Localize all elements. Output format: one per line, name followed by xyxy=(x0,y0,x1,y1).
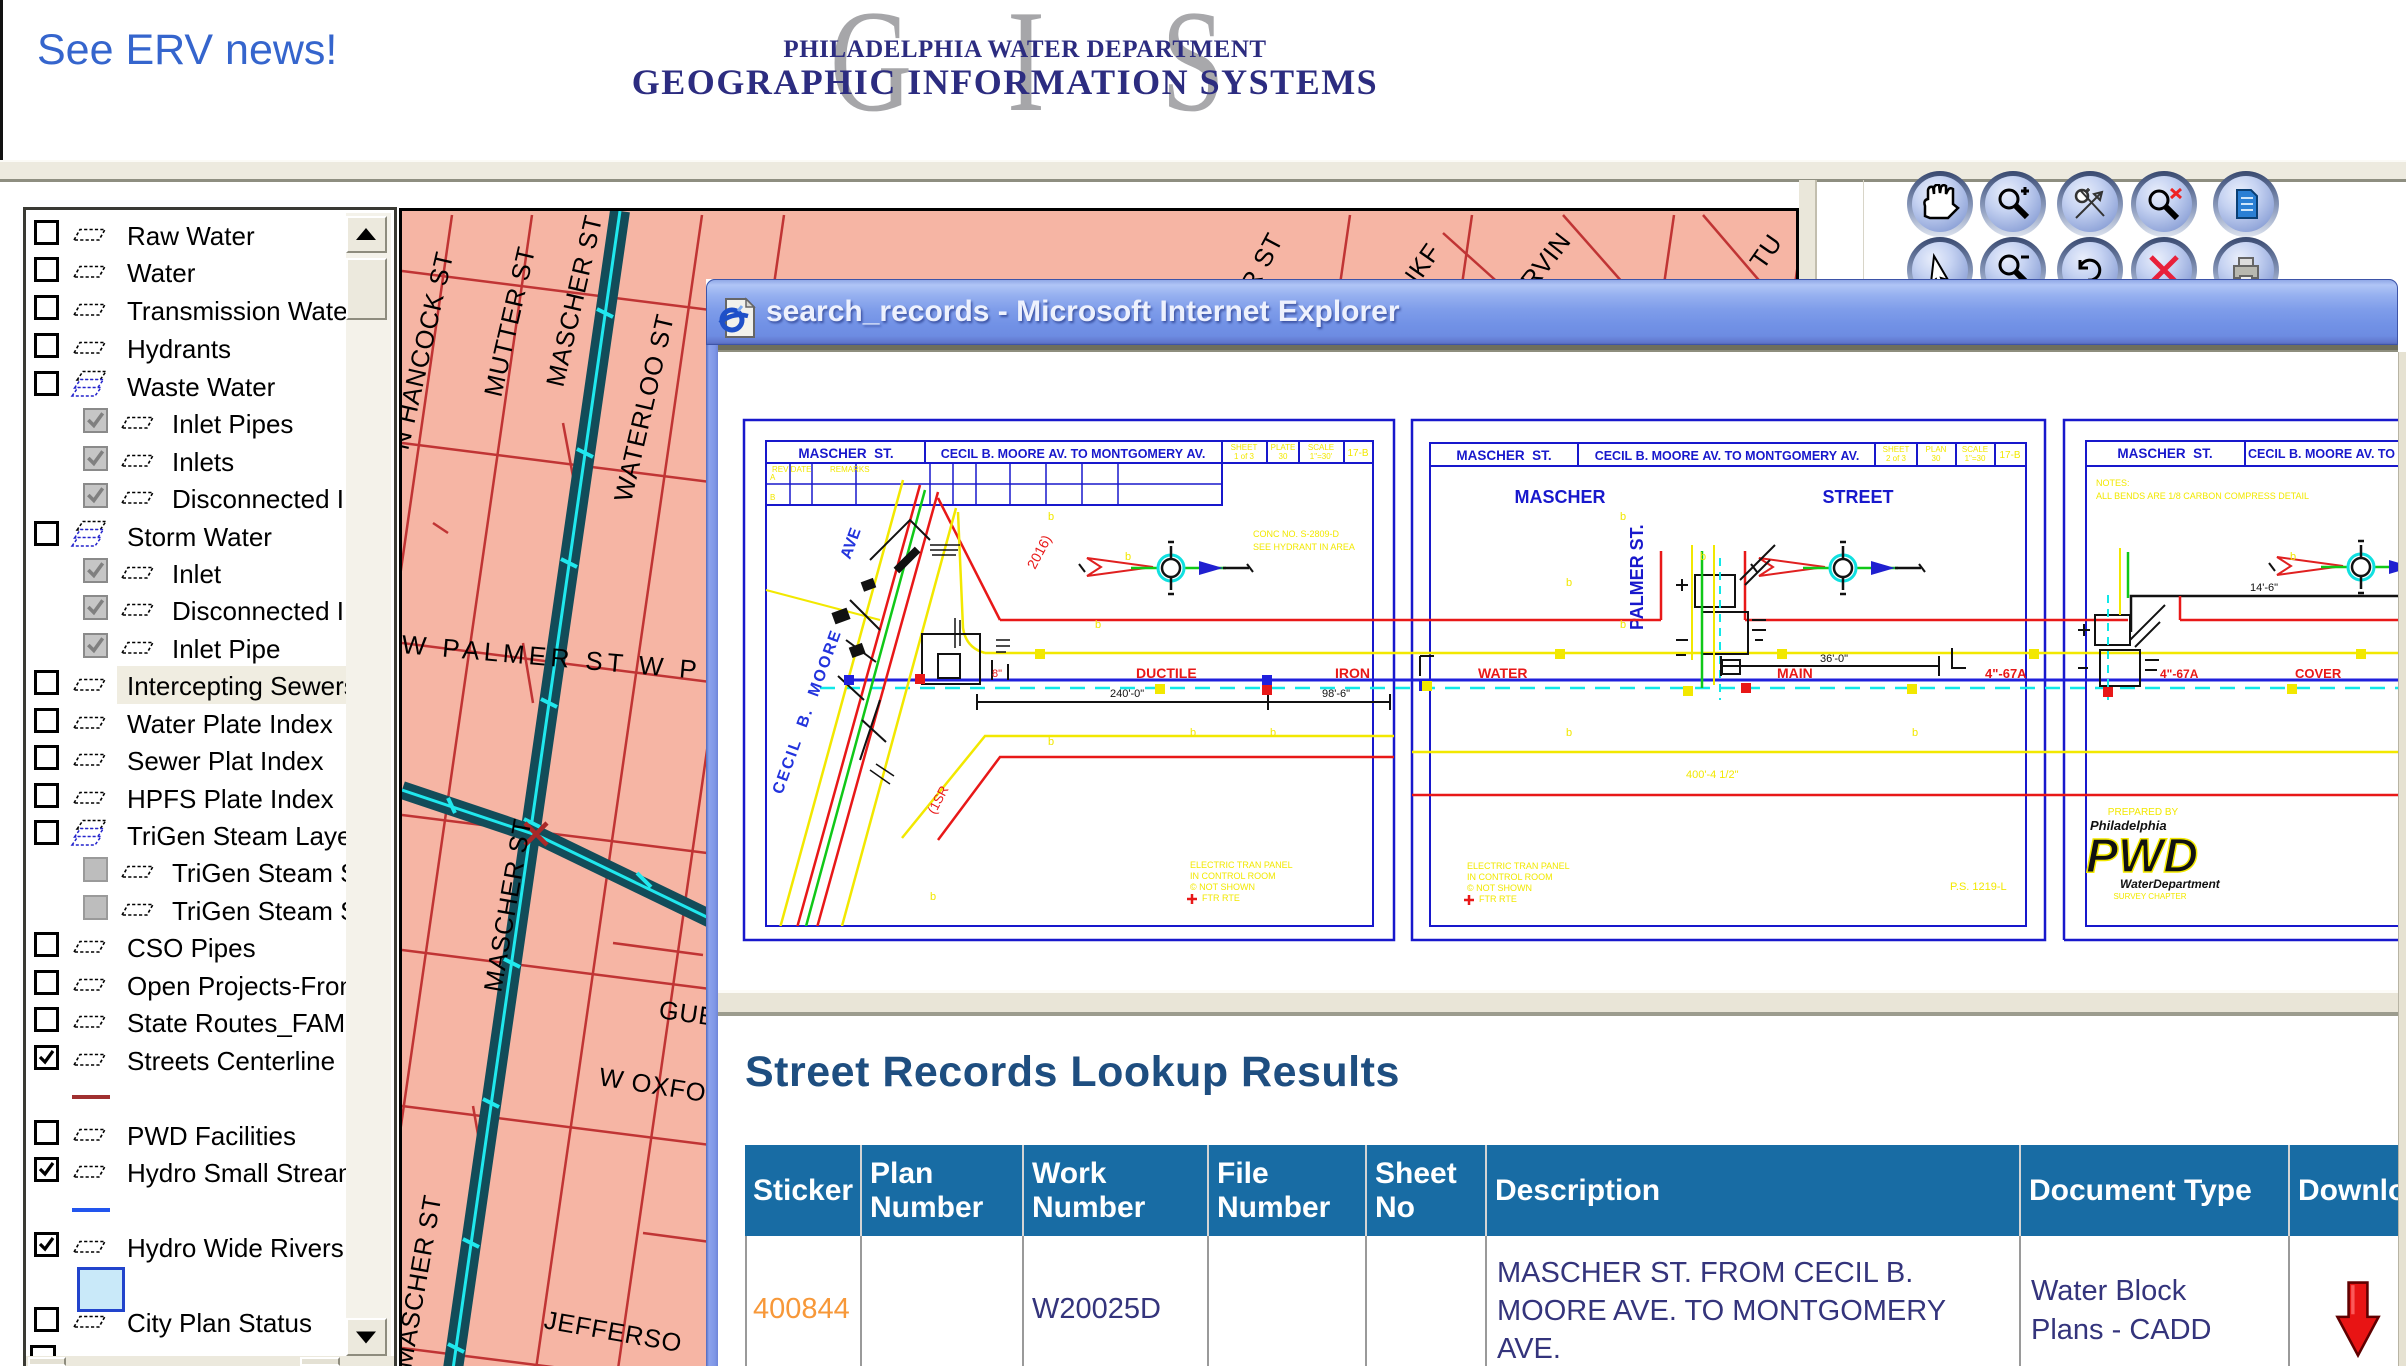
svg-text:98'-6": 98'-6" xyxy=(1322,688,1350,700)
svg-text:© NOT SHOWN: © NOT SHOWN xyxy=(1467,883,1532,893)
svg-text:400'-4 1/2": 400'-4 1/2" xyxy=(1686,769,1739,781)
svg-text:17-B: 17-B xyxy=(1347,448,1368,459)
svg-text:© NOT SHOWN: © NOT SHOWN xyxy=(1190,882,1255,892)
svg-text:MASCHER ST.: MASCHER ST. xyxy=(798,446,893,461)
svg-text:b: b xyxy=(1912,727,1918,739)
svg-text:30: 30 xyxy=(1932,454,1941,463)
svg-text:4"-67A: 4"-67A xyxy=(1985,666,2027,681)
svg-text:b: b xyxy=(1620,619,1626,631)
svg-text:SHEET: SHEET xyxy=(1231,443,1258,452)
svg-text:b: b xyxy=(1125,551,1131,563)
svg-text:14'-6": 14'-6" xyxy=(2250,582,2278,594)
svg-text:CECIL B. MOORE AV. TO I: CECIL B. MOORE AV. TO I xyxy=(2248,447,2402,461)
svg-text:240'-0": 240'-0" xyxy=(1110,688,1144,700)
svg-text:FTR RTE: FTR RTE xyxy=(1202,893,1240,903)
svg-text:DUCTILE: DUCTILE xyxy=(1136,665,1197,681)
svg-text:b: b xyxy=(930,891,936,903)
svg-text:REV DATE: REV DATE xyxy=(772,465,811,474)
svg-text:SHEET: SHEET xyxy=(1883,445,1910,454)
svg-text:CECIL B. MOORE AV. TO MONTGOME: CECIL B. MOORE AV. TO MONTGOMERY AV. xyxy=(1595,449,1860,463)
svg-text:STREET: STREET xyxy=(1822,487,1893,507)
svg-text:1 of 3: 1 of 3 xyxy=(1234,452,1255,461)
svg-text:PLATE: PLATE xyxy=(1271,443,1296,452)
svg-text:PWD: PWD xyxy=(2086,830,2198,883)
svg-text:4"-67A: 4"-67A xyxy=(2160,667,2199,681)
svg-text:b: b xyxy=(2290,551,2296,563)
svg-text:P.S. 1219-L: P.S. 1219-L xyxy=(1950,881,2007,893)
svg-text:b: b xyxy=(1620,511,1626,523)
svg-text:FTR RTE: FTR RTE xyxy=(1479,894,1517,904)
svg-text:MASCHER ST.: MASCHER ST. xyxy=(2117,446,2212,461)
svg-text:b: b xyxy=(1566,577,1572,589)
svg-text:MASCHER: MASCHER xyxy=(1514,487,1605,507)
svg-text:IN CONTROL ROOM: IN CONTROL ROOM xyxy=(1467,872,1553,882)
svg-text:b: b xyxy=(1700,551,1706,563)
svg-text:1"=30': 1"=30' xyxy=(1310,452,1333,461)
svg-text:IRON: IRON xyxy=(1335,665,1370,681)
svg-text:30: 30 xyxy=(1279,452,1288,461)
svg-text:b: b xyxy=(1095,619,1101,631)
svg-text:8": 8" xyxy=(992,668,1002,680)
svg-text:17-B: 17-B xyxy=(1999,450,2020,461)
svg-text:NOTES:: NOTES: xyxy=(2096,478,2130,488)
svg-text:MAIN: MAIN xyxy=(1777,665,1813,681)
svg-text:b: b xyxy=(1048,511,1054,523)
svg-text:A: A xyxy=(770,473,776,482)
svg-text:ELECTRIC TRAN PANEL: ELECTRIC TRAN PANEL xyxy=(1467,861,1570,871)
svg-text:b: b xyxy=(1190,727,1196,739)
svg-text:36'-0": 36'-0" xyxy=(1820,653,1848,665)
svg-text:b: b xyxy=(1270,727,1276,739)
svg-text:COVER: COVER xyxy=(2295,666,2342,681)
svg-text:SCALE: SCALE xyxy=(1308,443,1334,452)
svg-text:SEE HYDRANT IN AREA: SEE HYDRANT IN AREA xyxy=(1253,542,1355,552)
svg-text:ELECTRIC TRAN PANEL: ELECTRIC TRAN PANEL xyxy=(1190,860,1293,870)
svg-text:MASCHER ST.: MASCHER ST. xyxy=(1456,448,1551,463)
svg-text:REMARKS: REMARKS xyxy=(830,465,870,474)
svg-text:SURVEY CHAPTER: SURVEY CHAPTER xyxy=(2113,892,2186,901)
svg-text:PREPARED BY: PREPARED BY xyxy=(2108,807,2179,818)
svg-text:B: B xyxy=(770,493,775,502)
svg-text:IN CONTROL ROOM: IN CONTROL ROOM xyxy=(1190,871,1276,881)
svg-text:PALMER ST.: PALMER ST. xyxy=(1627,524,1647,630)
svg-text:b: b xyxy=(1048,736,1054,748)
svg-text:WATER: WATER xyxy=(1478,665,1528,681)
svg-text:2 of 3: 2 of 3 xyxy=(1886,454,1907,463)
svg-text:CONC NO. S-2809-D: CONC NO. S-2809-D xyxy=(1253,529,1340,539)
svg-text:b: b xyxy=(1566,727,1572,739)
svg-text:ALL BENDS ARE 1/8 CARBON COMPR: ALL BENDS ARE 1/8 CARBON COMPRESS DETAIL xyxy=(2096,491,2309,501)
svg-text:PLAN: PLAN xyxy=(1926,445,1947,454)
svg-text:1"=30: 1"=30 xyxy=(1965,454,1986,463)
svg-text:WaterDepartment: WaterDepartment xyxy=(2120,877,2221,891)
svg-text:CECIL B. MOORE AV. TO MONTGOME: CECIL B. MOORE AV. TO MONTGOMERY AV. xyxy=(941,447,1206,461)
svg-text:SCALE: SCALE xyxy=(1962,445,1988,454)
